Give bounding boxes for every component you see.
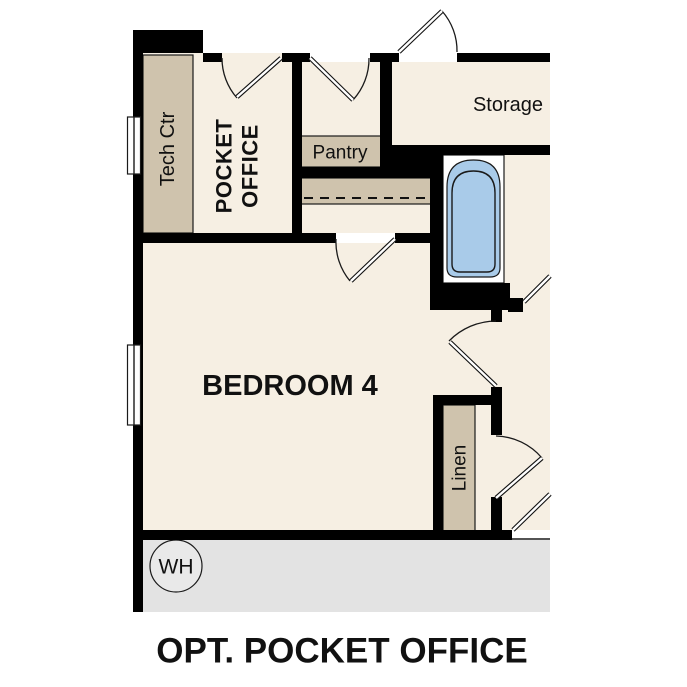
tech-ctr-label: Tech Ctr	[157, 111, 179, 186]
door-arc	[442, 11, 457, 52]
wall	[380, 53, 392, 148]
storage-door	[399, 11, 457, 52]
wall	[433, 395, 502, 405]
wall	[491, 497, 502, 530]
closet-shelf	[301, 178, 432, 204]
window-icon	[128, 117, 141, 174]
pocket-office-label-line2: OFFICE	[238, 124, 263, 208]
wall	[292, 53, 302, 243]
wall	[491, 405, 502, 435]
window-icon	[128, 345, 141, 425]
floor-plan: Tech Ctr POCKET OFFICE Pantry Storage BE…	[0, 0, 687, 687]
wall	[300, 167, 381, 178]
bedroom-label: BEDROOM 4	[202, 370, 378, 402]
floor-hall	[504, 155, 550, 243]
wall	[457, 53, 550, 62]
wall	[133, 233, 336, 243]
bathtub-icon	[447, 160, 500, 277]
pantry-label: Pantry	[313, 143, 368, 164]
garage-floor	[143, 540, 550, 612]
storage-label: Storage	[473, 94, 543, 116]
wall	[435, 145, 550, 155]
wall	[133, 530, 512, 540]
wall	[203, 53, 222, 62]
wall	[491, 308, 502, 322]
wall	[433, 395, 443, 538]
wall	[430, 283, 510, 310]
bathtub	[443, 155, 504, 283]
plan-title: OPT. POCKET OFFICE	[156, 631, 527, 670]
garage	[143, 539, 550, 612]
linen-label: Linen	[450, 445, 471, 492]
wall	[133, 30, 203, 53]
pocket-office-label-line1: POCKET	[212, 119, 237, 214]
wall	[508, 298, 523, 312]
water-heater-label: WH	[159, 555, 194, 578]
